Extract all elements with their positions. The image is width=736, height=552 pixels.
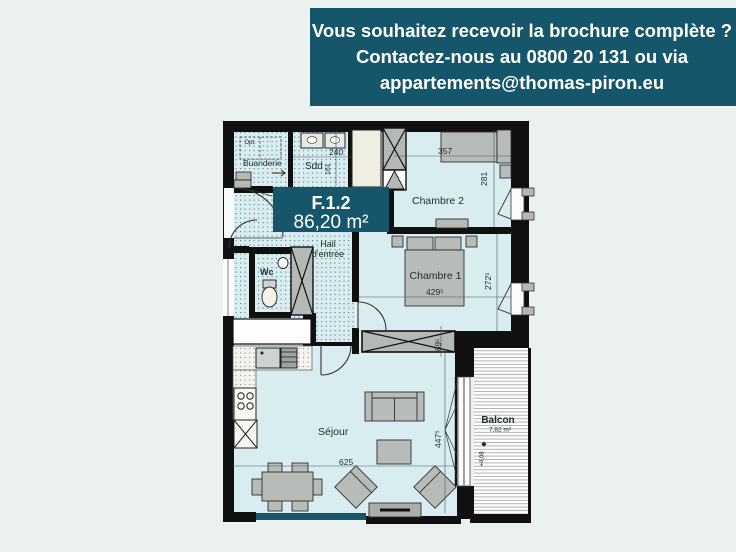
svg-text:240: 240 bbox=[329, 147, 343, 157]
svg-text:Balcon: Balcon bbox=[481, 415, 514, 426]
svg-text:Contactez-nous au 0800 20 131: Contactez-nous au 0800 20 131 ou via bbox=[356, 46, 689, 67]
svg-text:357: 357 bbox=[438, 146, 452, 156]
svg-text:Séjour: Séjour bbox=[318, 426, 349, 438]
svg-text:272⁵: 272⁵ bbox=[483, 272, 493, 290]
svg-text:625: 625 bbox=[339, 457, 353, 467]
svg-text:Wc: Wc bbox=[260, 267, 274, 277]
svg-text:Chambre 1: Chambre 1 bbox=[410, 270, 462, 282]
svg-text:Buanderie: Buanderie bbox=[243, 158, 282, 168]
svg-text:+4,08: +4,08 bbox=[480, 451, 486, 467]
svg-text:Opt.: Opt. bbox=[244, 140, 256, 146]
svg-text:86,20 m²: 86,20 m² bbox=[294, 212, 369, 233]
svg-text:447⁵: 447⁵ bbox=[433, 430, 443, 448]
svg-text:Chambre 2: Chambre 2 bbox=[412, 195, 464, 207]
svg-text:F.1.2: F.1.2 bbox=[311, 193, 350, 213]
svg-text:429⁵: 429⁵ bbox=[426, 287, 444, 297]
svg-text:appartements@thomas-piron.eu: appartements@thomas-piron.eu bbox=[380, 72, 664, 93]
svg-text:281: 281 bbox=[479, 172, 489, 186]
svg-text:69⁵: 69⁵ bbox=[434, 339, 443, 351]
svg-text:Vous souhaitez recevoir la bro: Vous souhaitez recevoir la brochure comp… bbox=[312, 20, 732, 41]
svg-text:7,82 m²: 7,82 m² bbox=[489, 427, 512, 434]
svg-text:◆: ◆ bbox=[481, 441, 487, 448]
svg-text:d'entrée: d'entrée bbox=[312, 249, 344, 259]
svg-text:Hall: Hall bbox=[320, 239, 336, 249]
svg-text:Sdd: Sdd bbox=[305, 161, 323, 172]
svg-text:161: 161 bbox=[325, 163, 332, 175]
